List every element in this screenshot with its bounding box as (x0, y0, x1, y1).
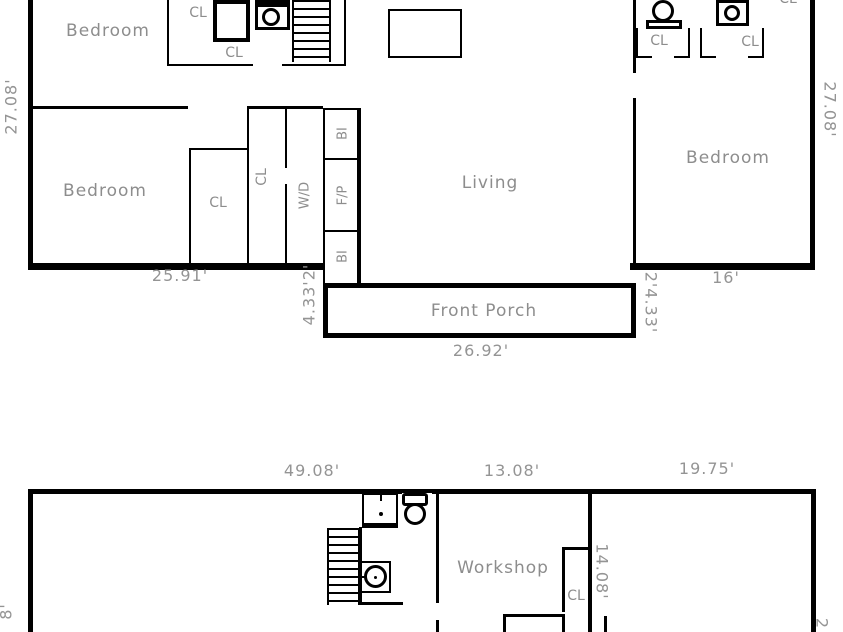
lower-outer-wall-left (28, 489, 33, 632)
room-label-bedroom-tl: Bedroom (53, 21, 163, 41)
closet-b-stub-l (700, 56, 716, 58)
bedroom-r-west-wall-b (633, 98, 636, 266)
partial-closet-wall-left (503, 614, 506, 632)
closet-label-rotated: CL (254, 162, 270, 192)
closet-a-wall-left (636, 28, 638, 58)
closet-label: CL (644, 33, 674, 49)
door-jamb (604, 616, 607, 632)
lower-interior-wall (588, 489, 592, 632)
dimension-label: 14.08' (593, 532, 612, 612)
tl-closet-wall-vertical (167, 0, 169, 66)
workshop-closet-wall-top (562, 547, 591, 550)
bathroom-wall-right (436, 493, 439, 603)
closet-label: CL (561, 588, 591, 604)
closet-a-stub-l (636, 56, 652, 58)
room-label-workshop: Workshop (448, 558, 558, 578)
builtin-divider-2 (323, 230, 361, 232)
bl-closet-wall-top (189, 148, 247, 150)
closet-b-wall-left (700, 28, 702, 58)
bedroom-tl-south-wall-a (30, 106, 188, 109)
dimension-label: 27.08' (821, 75, 840, 145)
washer-icon (716, 0, 749, 26)
room-label-bedroom-bl: Bedroom (50, 181, 160, 201)
staircase-icon (327, 528, 360, 605)
dimension-label: 2'4.33' (642, 258, 661, 348)
closet-column-wall-left (247, 106, 249, 266)
washer-dryer-label: W/D (298, 176, 313, 216)
closet-label: CL (203, 195, 233, 211)
toilet-icon (255, 0, 290, 30)
dimension-label: 26.92' (421, 341, 541, 360)
room-label-bedroom-r: Bedroom (673, 148, 783, 168)
tl-closet-wall-bottom (167, 64, 253, 66)
bath-wall-right (344, 0, 346, 66)
closet-a-stub-r (674, 56, 690, 58)
dimension-label: 16' (696, 268, 756, 287)
dimension-label: 49.08' (252, 461, 372, 480)
closet-b-stub-r (748, 56, 764, 58)
dimension-label: 19.75' (647, 459, 767, 478)
dimension-label: 27.08' (2, 72, 21, 142)
closet-a-wall-right (688, 28, 690, 58)
table-icon (388, 9, 462, 58)
partial-closet-wall-right (562, 614, 565, 632)
closet-label: CL (183, 5, 213, 21)
fireplace-label: F/P (336, 176, 351, 216)
closet-column-wall-right-a (285, 106, 287, 168)
bathtub-icon (213, 0, 250, 42)
bl-closet-wall-left (189, 148, 191, 266)
builtin-label: BI (336, 237, 351, 277)
upper-outer-wall-right (810, 0, 815, 270)
staircase-icon (292, 0, 331, 62)
dimension-label-partial: 2 (813, 604, 832, 632)
floor-plan-drawing: Bedroom Bedroom Living Bedroom Front Por… (0, 0, 843, 632)
toilet-icon (646, 0, 682, 30)
builtin-label: BI (336, 114, 351, 154)
bathroom-wall-right-stub (436, 620, 439, 632)
partial-closet-wall-top (503, 614, 565, 617)
bathroom-wall-bottom (359, 602, 403, 605)
closet-label-partial: CL (771, 0, 805, 7)
builtin-divider-1 (323, 158, 361, 160)
upper-outer-wall-left (28, 0, 33, 270)
closet-column-wall-right-b (285, 184, 287, 266)
room-label-living: Living (435, 173, 545, 193)
dimension-label: 13.08' (452, 461, 572, 480)
room-label-front-porch: Front Porch (414, 301, 554, 321)
toilet-icon (402, 493, 432, 527)
bath-wall-bottom (282, 64, 346, 66)
closet-label: CL (219, 45, 249, 61)
dimension-label-partial: 8' (0, 587, 16, 632)
lavatory-icon (360, 561, 391, 593)
dimension-label: 25.91' (120, 266, 240, 285)
closet-label: CL (735, 34, 765, 50)
dimension-label: 4.33'2' (300, 250, 319, 340)
sink-icon (362, 493, 398, 528)
